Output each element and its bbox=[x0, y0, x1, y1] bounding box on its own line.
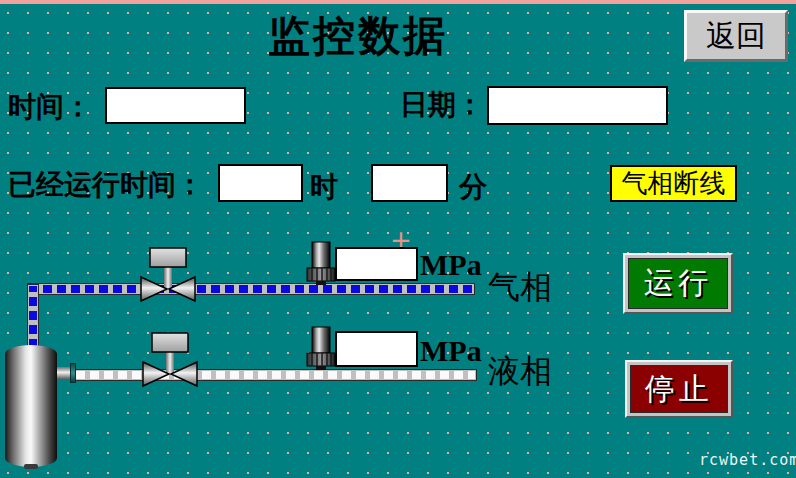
runtime-label: 已经运行时间： bbox=[8, 166, 204, 204]
gas-pipe bbox=[27, 283, 475, 295]
gas-pressure-transmitter-icon bbox=[304, 241, 338, 287]
gas-pressure-display[interactable] bbox=[335, 247, 418, 281]
liquid-line-label: 液相 bbox=[488, 350, 552, 394]
time-field[interactable] bbox=[105, 87, 246, 124]
stop-button[interactable]: 停止 bbox=[625, 360, 733, 418]
gas-disconnect-alarm-badge: 气相断线 bbox=[610, 165, 737, 202]
date-label: 日期： bbox=[400, 86, 484, 124]
liquid-pressure-unit: MPa bbox=[420, 334, 482, 368]
alarm-text: 气相断线 bbox=[622, 166, 726, 201]
stop-button-label: 停止 bbox=[645, 369, 713, 410]
runtime-hours-field[interactable] bbox=[218, 164, 303, 202]
runtime-hours-unit: 时 bbox=[310, 168, 338, 206]
gas-riser-pipe bbox=[27, 284, 39, 350]
time-label: 时间： bbox=[8, 88, 92, 126]
gas-pressure-unit: MPa bbox=[420, 248, 482, 282]
tank-icon bbox=[2, 342, 60, 470]
back-button[interactable]: 返回 bbox=[684, 10, 788, 62]
liquid-valve-icon bbox=[140, 331, 200, 389]
runtime-minutes-field[interactable] bbox=[371, 164, 448, 202]
liquid-pipe bbox=[74, 369, 477, 381]
page-title: 监控数据 bbox=[268, 8, 498, 64]
watermark: rcwbet.com bbox=[699, 451, 796, 469]
run-button[interactable]: 运行 bbox=[623, 253, 733, 314]
runtime-minutes-unit: 分 bbox=[459, 168, 487, 206]
tank-nozzle-flange bbox=[70, 363, 76, 383]
gas-valve-icon bbox=[138, 246, 198, 304]
liquid-pressure-display[interactable] bbox=[335, 331, 418, 367]
run-button-label: 运行 bbox=[644, 263, 712, 304]
top-border-band bbox=[0, 0, 796, 4]
liquid-pressure-transmitter-icon bbox=[304, 326, 338, 372]
hmi-monitor-screen: 监控数据 返回 时间： 日期： 已经运行时间： 时 分 气相断线 + MPa 气… bbox=[0, 0, 796, 478]
date-field[interactable] bbox=[487, 86, 668, 125]
gas-line-label: 气相 bbox=[488, 266, 552, 310]
back-button-label: 返回 bbox=[706, 16, 766, 57]
